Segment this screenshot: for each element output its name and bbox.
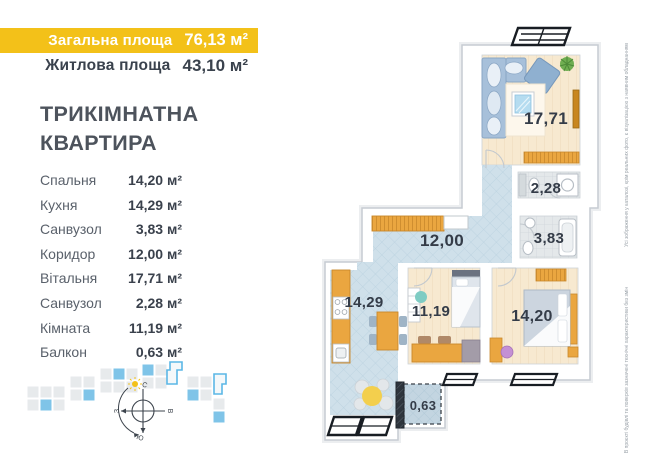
label-room: 11,19: [412, 303, 450, 320]
label-bath-top: 2,28: [531, 180, 561, 197]
label-kitchen: 14,29: [344, 294, 383, 311]
kitchen-sink: [333, 344, 349, 362]
balcony-wall-hatch: [396, 382, 404, 428]
floor-plan: 17,71 2,28 12,00 3,83 14,29 11,19 14,20 …: [0, 0, 650, 460]
nightstand: [568, 347, 578, 357]
label-bath-mid: 3,83: [534, 230, 564, 247]
bedroom-dresser: [490, 338, 502, 362]
label-living: 17,71: [524, 109, 568, 128]
corridor-wardrobe: [372, 216, 444, 231]
desk: [412, 336, 480, 362]
kitchen-counter: [332, 270, 350, 363]
sink: [525, 218, 535, 228]
disclaimer-lower: В проєкті будівлі та поверхів зазначені …: [624, 287, 630, 453]
label-balcony: 0,63: [410, 398, 437, 413]
window-icon-bedroom: [511, 374, 557, 385]
window-icon-kitchen: [328, 417, 392, 435]
bedroom-wardrobe: [536, 269, 566, 281]
plant-small-icon: [415, 291, 427, 303]
window-icon-top: [512, 28, 570, 45]
label-corridor: 12,00: [420, 231, 464, 250]
disclaimer-upper: Усі зображення у каталозі, крім реальних…: [624, 43, 630, 247]
pouf: [501, 346, 513, 358]
toilet-mid: [523, 242, 533, 255]
label-bedroom: 14,20: [511, 308, 553, 325]
living-dresser: [524, 152, 579, 163]
window-icon-room: [443, 374, 477, 385]
tv-cabinet: [573, 90, 579, 128]
corridor-bench: [444, 216, 468, 229]
single-bed: [452, 270, 480, 327]
